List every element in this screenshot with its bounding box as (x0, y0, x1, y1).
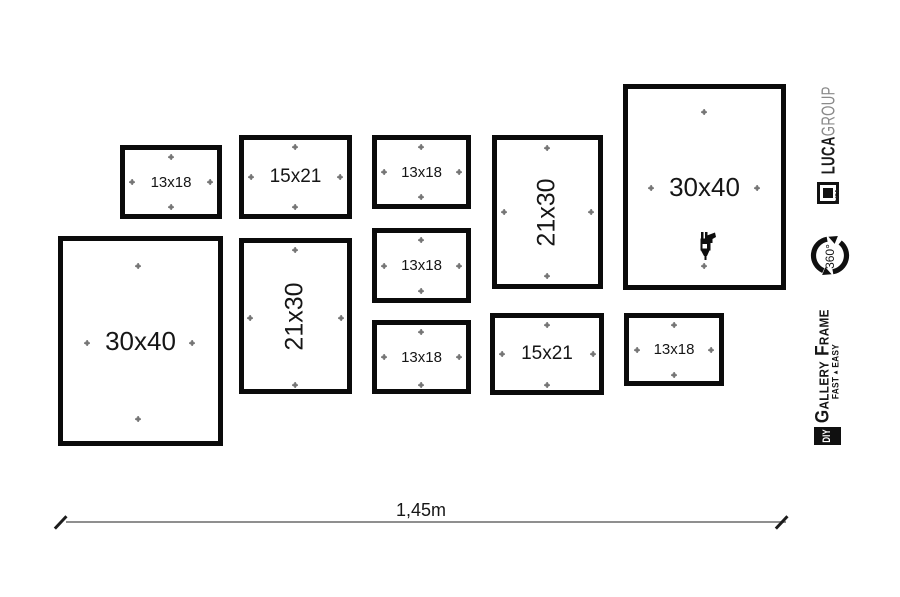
svg-text:360°: 360° (823, 244, 837, 269)
